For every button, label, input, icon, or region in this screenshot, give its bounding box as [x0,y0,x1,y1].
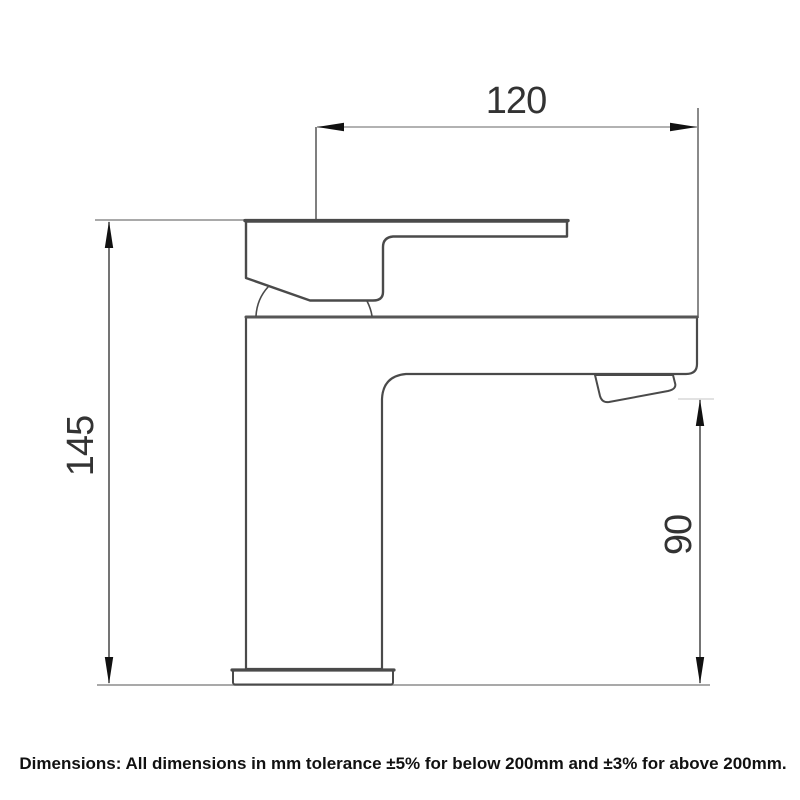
width-arrow-left-icon [317,123,344,131]
handle-lever [246,222,567,301]
handle-joint-line-left [256,287,268,316]
height-arrow-top-icon [105,221,113,248]
faucet-outline [232,221,697,685]
width-arrow-right-icon [670,123,697,131]
height-dimension-value: 145 [60,416,102,476]
spout-height-dimension-value: 90 [658,515,700,555]
height-arrow-bottom-icon [105,657,113,684]
handle-joint-line-right [367,301,372,316]
faucet-dimension-diagram: 120 145 90 Dimensions: All dimensions in… [0,0,800,800]
tolerance-note: Dimensions: All dimensions in mm toleran… [19,754,786,773]
faucet-body [246,317,697,669]
width-dimension-value: 120 [486,80,546,122]
base-plate [233,670,393,685]
spout-aerator [595,375,675,402]
spout-height-arrow-top-icon [696,399,704,426]
spout-height-arrow-bottom-icon [696,657,704,684]
drawing-canvas: 120 145 90 Dimensions: All dimensions in… [0,0,800,800]
dimension-lines [105,123,704,684]
